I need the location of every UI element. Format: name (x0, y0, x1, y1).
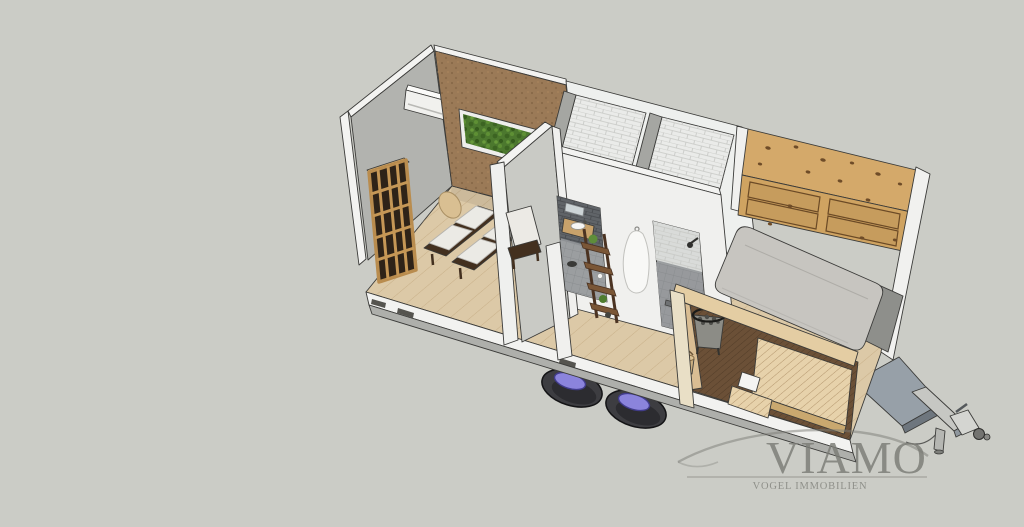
bench-leg (537, 250, 538, 261)
daybed-leg (432, 254, 433, 265)
watermark-subtitle: VOGEL IMMOBILIEN (753, 481, 868, 492)
potted-plant (589, 235, 598, 244)
hitch-ball-socket (974, 429, 985, 440)
daybed-leg (460, 268, 461, 279)
potted-plant (599, 295, 607, 303)
jockey-jack (934, 428, 945, 452)
bench-leg (513, 258, 514, 269)
hanging-robe (623, 231, 649, 293)
shelf-item (605, 312, 611, 318)
tiny-house-rendering: VIAMO VOGEL IMMOBILIEN (0, 0, 1024, 527)
floor-item (567, 261, 577, 267)
hitch-knob (984, 434, 990, 440)
render-viewport: VIAMO VOGEL IMMOBILIEN (0, 0, 1024, 527)
cup (598, 274, 603, 279)
stove-leg (718, 348, 719, 355)
sink (571, 223, 585, 230)
stove-leg (697, 347, 698, 354)
faucet (583, 220, 586, 223)
watermark-brand: VIAMO (766, 432, 927, 483)
jack-foot (935, 450, 944, 454)
shower-head (687, 242, 693, 248)
